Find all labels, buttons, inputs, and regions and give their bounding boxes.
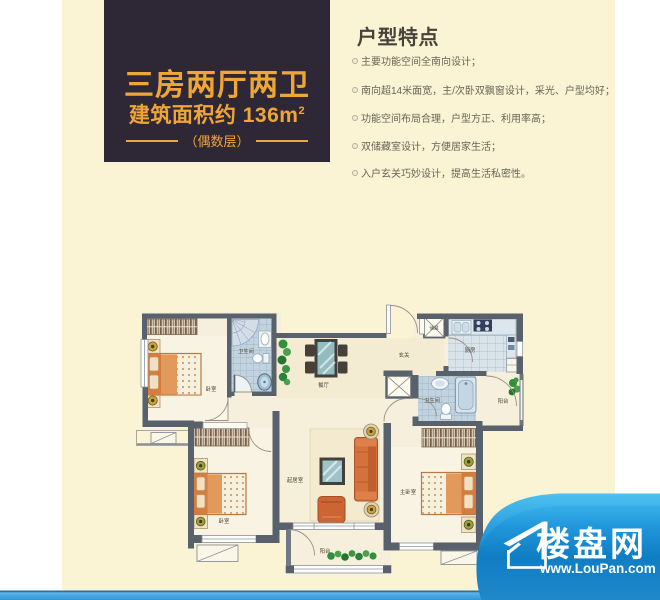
svg-text:www.LouPan.com: www.LouPan.com — [539, 561, 656, 576]
svg-text:楼盘网: 楼盘网 — [536, 526, 647, 564]
